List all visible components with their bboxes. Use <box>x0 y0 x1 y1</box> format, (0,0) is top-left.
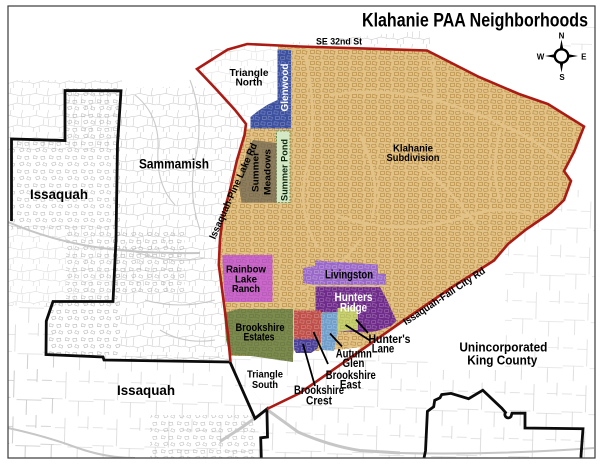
svg-text:Sammamish: Sammamish <box>139 156 209 172</box>
svg-text:Meadows: Meadows <box>263 149 274 195</box>
svg-text:Glenwood: Glenwood <box>280 63 291 111</box>
svg-text:Glen: Glen <box>342 358 364 370</box>
svg-text:Ranch: Ranch <box>232 284 260 295</box>
svg-text:Klahanie PAA Neighborhoods: Klahanie PAA Neighborhoods <box>362 10 588 32</box>
svg-text:Crest: Crest <box>306 396 332 408</box>
svg-text:Livingston: Livingston <box>325 267 373 281</box>
svg-text:S: S <box>559 73 565 82</box>
svg-text:Estates: Estates <box>244 332 275 344</box>
svg-text:E: E <box>581 52 587 61</box>
svg-text:Subdivision: Subdivision <box>387 153 440 164</box>
svg-text:Lane: Lane <box>372 344 395 356</box>
svg-text:King County: King County <box>467 352 538 367</box>
svg-text:Summer: Summer <box>251 152 262 192</box>
svg-text:SE 32nd St: SE 32nd St <box>316 37 363 48</box>
svg-text:Ridge: Ridge <box>340 301 367 315</box>
svg-text:W: W <box>537 52 545 61</box>
svg-text:Issaquah: Issaquah <box>30 186 88 202</box>
svg-text:North: North <box>236 78 263 89</box>
svg-text:Issaquah: Issaquah <box>117 382 175 398</box>
svg-text:Summer Pond: Summer Pond <box>280 139 291 201</box>
svg-text:N: N <box>559 31 565 40</box>
svg-text:South: South <box>252 379 278 391</box>
